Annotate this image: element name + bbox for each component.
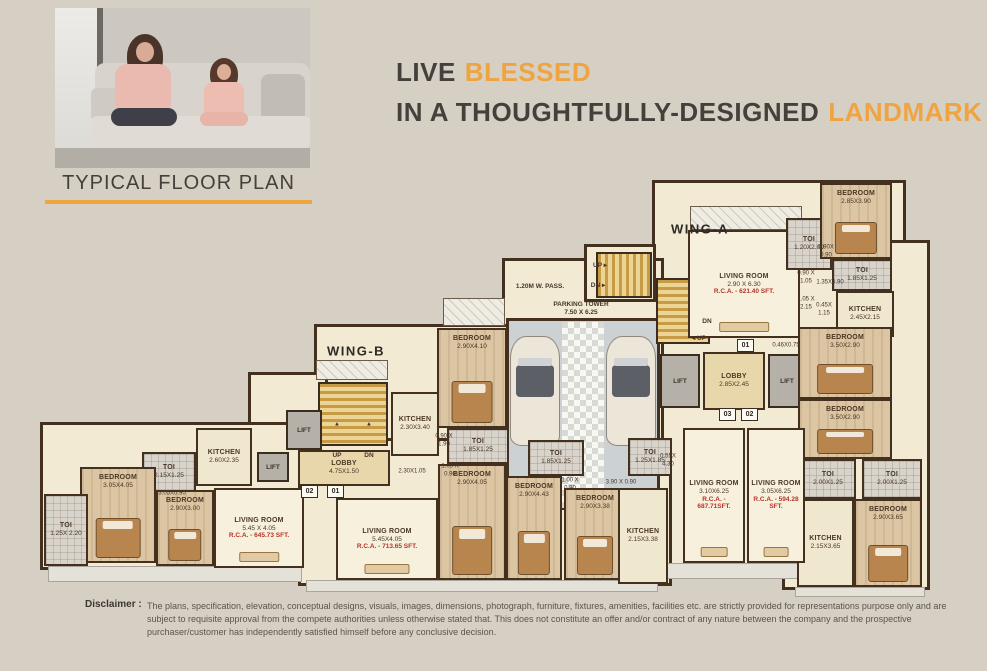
room-bedroom: BEDROOM2.90X4.43: [506, 476, 562, 580]
room-dm: 5.45X4.05: [372, 536, 402, 543]
sofa-icon: [701, 547, 728, 557]
balcony-deck: [795, 587, 925, 597]
room-nm: TOI: [163, 464, 175, 472]
dimension-label: 3.90 X 0.90: [606, 479, 637, 487]
room-nm: TOI: [644, 449, 656, 457]
dimension-label: DN ▸: [591, 282, 605, 290]
room-dm: 2.00X1.25: [813, 479, 843, 486]
dimension-label: UP: [332, 452, 341, 460]
room-dm: 2.60X2.35: [209, 457, 239, 464]
room-nm: BEDROOM: [826, 334, 864, 342]
room-dm: 3.10X6.25: [699, 488, 729, 495]
room-bedroom: BEDROOM2.90X4.05: [438, 464, 506, 580]
floor-plan: LIFTLIFTLIFTLIFTLIVING ROOM2.90 X 6.30R.…: [0, 0, 987, 671]
room-toi: TOI1.85X1.25: [528, 440, 584, 476]
dimension-label: UP ▸: [593, 262, 607, 270]
room-nm: LIVING ROOM: [234, 517, 283, 525]
room-bedroom: BEDROOM3.50X2.90: [798, 327, 892, 399]
dimension-label: 2.30X1.05: [398, 468, 425, 476]
room-rca: R.C.A. - 594.28 SFT.: [751, 496, 801, 511]
room-lobby: LOBBY4.75X1.50: [298, 450, 390, 486]
disclaimer-text: The plans, specification, elevation, con…: [147, 600, 959, 639]
dimension-label: 1.00 X 0.90: [561, 478, 578, 493]
unit-number-plate: 02: [741, 408, 758, 421]
disclaimer-label: Disclaimer :: [85, 599, 142, 610]
dimension-label: 1.05 X 0.90: [441, 464, 458, 479]
room-nm: TOI: [472, 438, 484, 446]
unit-number-plate: 03: [719, 408, 736, 421]
room-dm: 2.45X2.15: [850, 314, 880, 321]
room-nm: KITCHEN: [809, 535, 842, 543]
room-kitchen: KITCHEN2.15X3.38: [618, 488, 668, 584]
room-nm: BEDROOM: [453, 335, 491, 343]
room-dm: 2.85X3.90: [841, 198, 871, 205]
room-dm: 4.75X1.50: [329, 468, 359, 475]
room-dm: 2.90X4.43: [519, 491, 549, 498]
room-dm: 3.05X6.25: [761, 488, 791, 495]
dimension-label: 1.05 X 2.15: [797, 297, 814, 312]
dimension-label: 0.90 X 1.90: [435, 434, 452, 449]
room-dm: 2.30X3.40: [400, 424, 430, 431]
dimension-label: 1.20M W. PASS.: [516, 283, 564, 291]
room-toi: TOI2.00X1.25: [800, 459, 856, 499]
wing-label: WING-A: [671, 222, 729, 237]
room-lobby: LOBBY2.85X2.45: [703, 352, 765, 410]
dimension-label: 1.35X0.90: [816, 279, 843, 287]
staircase: [596, 252, 652, 298]
bed-icon: [817, 429, 873, 454]
bed-icon: [868, 545, 908, 582]
lift: LIFT: [660, 354, 700, 408]
room-nm: BEDROOM: [166, 497, 204, 505]
room-bedroom: BEDROOM2.90X3.65: [854, 499, 922, 587]
room-dm: 1.85X1.25: [463, 446, 493, 453]
room-dm: 1.85X1.25: [847, 275, 877, 282]
room-rca: R.C.A. - 713.65 SFT.: [357, 543, 417, 550]
dimension-label: 0.90X 0.90: [818, 245, 834, 260]
room-dm: 5.45 X 4.05: [242, 525, 275, 532]
room-nm: TOI: [60, 522, 72, 530]
room-rca: R.C.A. - 621.40 SFT.: [714, 288, 774, 295]
bed-icon: [577, 536, 613, 575]
bed-icon: [835, 222, 877, 254]
dimension-label: PARKING TOWER 7.50 X 6.25: [553, 301, 608, 317]
sofa-icon: [719, 322, 769, 332]
room-nm: BEDROOM: [453, 471, 491, 479]
bed-icon: [518, 531, 550, 575]
room-nm: BEDROOM: [576, 495, 614, 503]
room-nm: BEDROOM: [869, 506, 907, 514]
room-dm: 2.90X4.10: [457, 343, 487, 350]
dimension-label: 0.90 X 1.05: [797, 271, 814, 286]
balcony-deck: [443, 298, 505, 326]
balcony-deck: [658, 563, 806, 579]
room-dm: 2.90X4.05: [457, 479, 487, 486]
room-nm: LIVING ROOM: [751, 480, 800, 488]
room-living: LIVING ROOM5.45 X 4.05R.C.A. - 645.73 SF…: [214, 488, 304, 568]
room-dm: 2.00X1.25: [877, 479, 907, 486]
room-living: LIVING ROOM3.05X6.25R.C.A. - 594.28 SFT.: [747, 428, 805, 563]
unit-number-plate: 02: [301, 485, 318, 498]
room-nm: KITCHEN: [849, 306, 882, 314]
unit-number-plate: 01: [327, 485, 344, 498]
room-dm: 2.15X3.65: [811, 543, 841, 550]
room-living: LIVING ROOM3.10X6.25R.C.A. - 687.71SFT.: [683, 428, 745, 563]
unit-number-plate: 01: [737, 339, 754, 352]
dimension-label: ▲: [334, 421, 340, 429]
bed-icon: [817, 364, 873, 394]
staircase: [318, 382, 388, 446]
room-toi: TOI1.25X 2.20: [44, 494, 88, 566]
room-kitchen: KITCHEN2.30X3.40: [391, 392, 439, 456]
room-nm: LOBBY: [721, 373, 747, 381]
room-rca: R.C.A. - 645.73 SFT.: [229, 532, 289, 539]
room-dm: 2.90X3.00: [170, 505, 200, 512]
bed-icon: [452, 526, 492, 575]
room-dm: 2.90X3.38: [580, 503, 610, 510]
room-dm: 2.15X3.38: [628, 536, 658, 543]
room-nm: TOI: [856, 267, 868, 275]
balcony-deck: [316, 360, 388, 380]
sofa-icon: [239, 552, 279, 562]
room-nm: BEDROOM: [826, 406, 864, 414]
room-toi: TOI1.85X1.25: [447, 428, 509, 464]
dimension-label: ◂ UP: [692, 335, 706, 343]
room-dm: 1.25X 2.20: [50, 530, 81, 537]
dimension-label: DN: [702, 318, 711, 326]
room-nm: TOI: [550, 450, 562, 458]
room-nm: BEDROOM: [99, 474, 137, 482]
room-dm: 2.85X2.45: [719, 381, 749, 388]
dimension-label: DN: [364, 452, 373, 460]
room-living: LIVING ROOM5.45X4.05R.C.A. - 713.65 SFT.: [336, 498, 438, 580]
dimension-label: 3.05X0.90: [158, 490, 185, 498]
room-dm: 2.90 X 6.30: [727, 281, 760, 288]
room-nm: LIVING ROOM: [689, 480, 738, 488]
room-nm: LIVING ROOM: [719, 273, 768, 281]
wing-label: WING-B: [327, 344, 385, 359]
dimension-label: ▲: [366, 421, 372, 429]
room-nm: LIVING ROOM: [362, 528, 411, 536]
room-kitchen: KITCHEN2.60X2.35: [196, 428, 252, 486]
room-nm: BEDROOM: [837, 190, 875, 198]
car-icon: [510, 336, 560, 446]
bed-icon: [96, 518, 141, 558]
room-nm: KITCHEN: [627, 528, 660, 536]
dimension-label: 0.46X0.75: [772, 342, 799, 350]
dimension-label: 0.45X 1.15: [816, 303, 832, 318]
room-bedroom: BEDROOM3.05X4.05: [80, 467, 156, 563]
room-nm: TOI: [886, 471, 898, 479]
bed-icon: [168, 529, 201, 561]
room-nm: TOI: [822, 471, 834, 479]
room-dm: 3.50X2.90: [830, 342, 860, 349]
bed-icon: [452, 381, 493, 423]
room-dm: 3.05X4.05: [103, 482, 133, 489]
room-nm: BEDROOM: [515, 483, 553, 491]
lift: LIFT: [286, 410, 322, 450]
room-bedroom: BEDROOM2.90X4.10: [437, 328, 507, 428]
sofa-icon: [764, 547, 789, 557]
sofa-icon: [364, 564, 409, 574]
room-nm: LOBBY: [331, 460, 357, 468]
room-rca: R.C.A. - 687.71SFT.: [687, 496, 741, 511]
room-dm: 2.15X1.25: [154, 472, 184, 479]
balcony-deck: [48, 566, 302, 582]
dimension-label: 0.55X 4.30: [660, 454, 676, 469]
room-kitchen: KITCHEN2.15X3.65: [797, 499, 854, 587]
balcony-deck: [306, 580, 658, 592]
room-dm: 2.90X3.65: [873, 514, 903, 521]
room-dm: 3.50X2.90: [830, 414, 860, 421]
car-icon: [606, 336, 656, 446]
room-bedroom: BEDROOM2.90X3.38: [564, 488, 626, 580]
room-nm: TOI: [803, 236, 815, 244]
lift: LIFT: [257, 452, 289, 482]
room-bedroom: BEDROOM2.90X3.00: [156, 490, 214, 566]
room-toi: TOI2.00X1.25: [862, 459, 922, 499]
room-nm: KITCHEN: [399, 416, 432, 424]
room-bedroom: BEDROOM3.50X2.90: [798, 399, 892, 459]
room-nm: KITCHEN: [208, 449, 241, 457]
room-dm: 1.85X1.25: [541, 458, 571, 465]
